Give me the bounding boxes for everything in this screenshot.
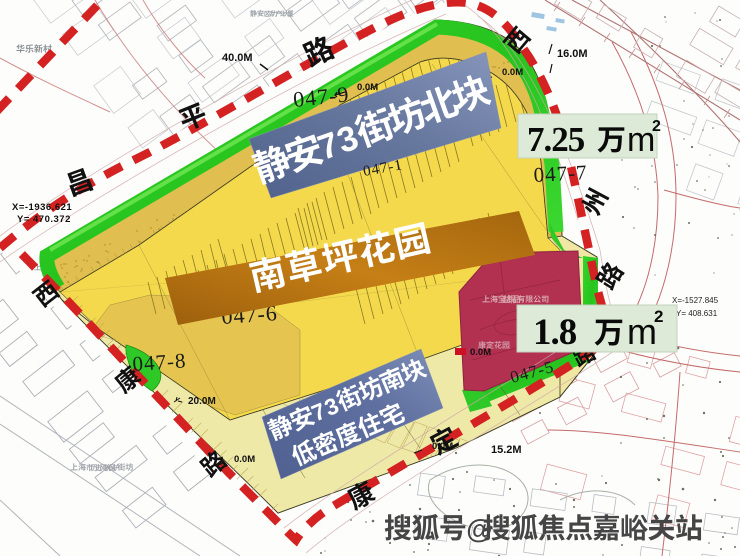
svg-text:0.0M: 0.0M: [357, 82, 378, 93]
svg-text:2: 2: [654, 307, 663, 326]
svg-text:20.0M: 20.0M: [188, 396, 216, 407]
svg-text:2: 2: [652, 118, 661, 135]
svg-text:7.25: 7.25: [527, 120, 585, 159]
svg-text:X=-1527.845: X=-1527.845: [672, 296, 719, 305]
svg-text:40.0M: 40.0M: [222, 52, 253, 64]
svg-text:0.0M: 0.0M: [432, 441, 453, 452]
svg-text:16.0M: 16.0M: [557, 48, 588, 60]
svg-text:Y= 408.631: Y= 408.631: [676, 309, 718, 318]
svg-text:Y= 470.372: Y= 470.372: [17, 214, 71, 225]
svg-text:厦: 厦: [288, 10, 295, 18]
svg-text:m: m: [627, 311, 657, 352]
svg-text:047-8: 047-8: [132, 348, 188, 376]
svg-text:0.0M: 0.0M: [470, 347, 491, 358]
svg-text:X=-1936.621: X=-1936.621: [12, 202, 72, 213]
svg-text:1.8: 1.8: [533, 312, 577, 353]
svg-text:0.0M: 0.0M: [234, 454, 255, 465]
svg-text:047-7: 047-7: [533, 160, 588, 187]
svg-text:0.0M: 0.0M: [502, 67, 523, 78]
svg-text:15.2M: 15.2M: [491, 444, 522, 456]
